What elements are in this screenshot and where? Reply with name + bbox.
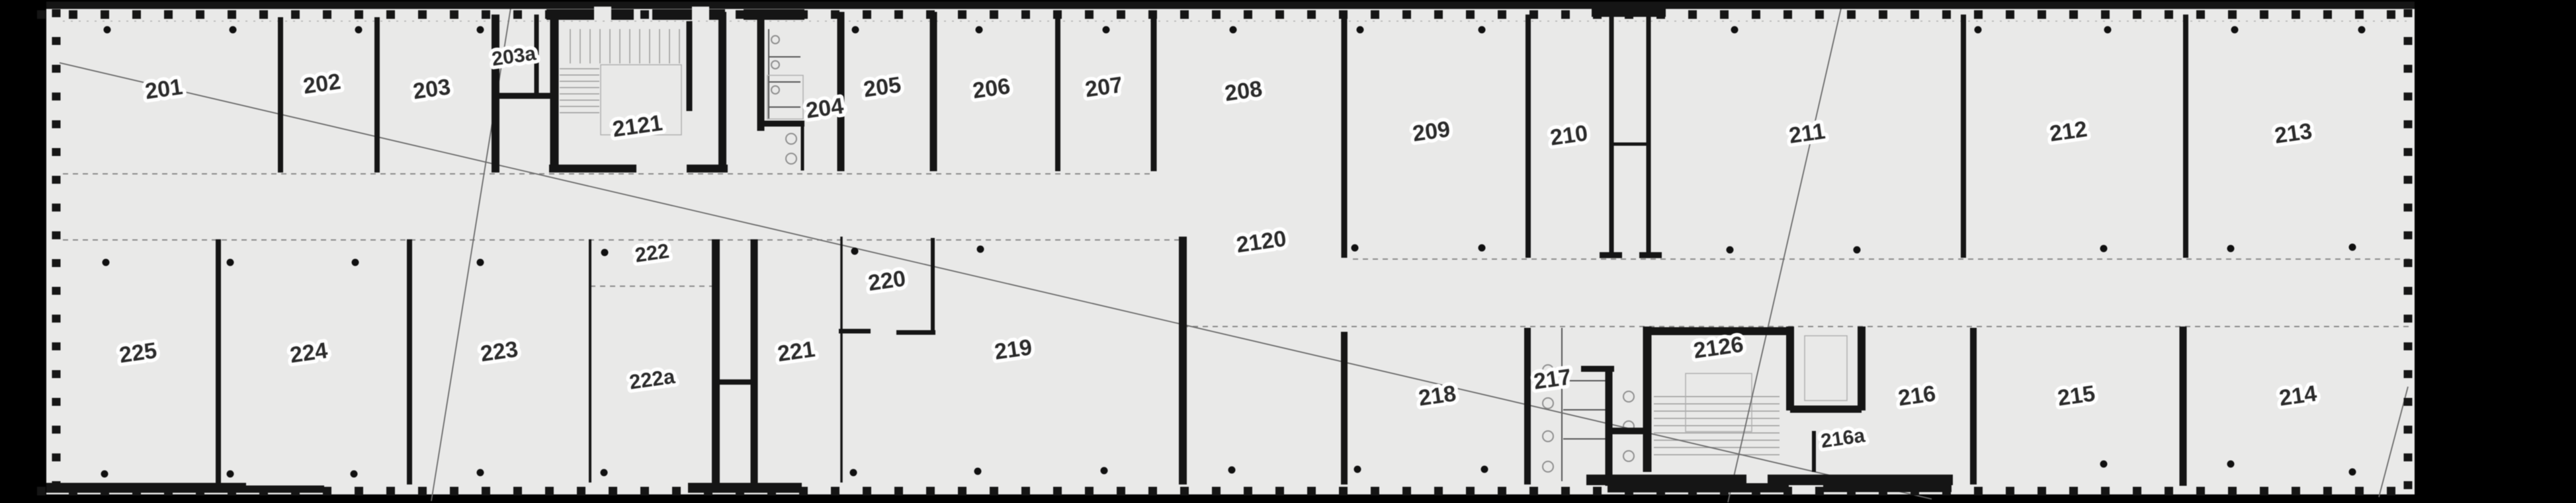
- column-dot: [2227, 245, 2235, 252]
- room-label-225: 225: [118, 338, 158, 368]
- room-label-201: 201: [144, 74, 184, 104]
- room-label-204: 204: [804, 93, 845, 124]
- room-label-211: 211: [1787, 118, 1827, 148]
- room-label-220: 220: [867, 266, 907, 296]
- column-dot: [477, 469, 484, 477]
- column-dot: [2104, 26, 2112, 34]
- column-dot: [2227, 461, 2235, 468]
- column-dot: [352, 259, 359, 266]
- column-dot: [1354, 466, 1361, 473]
- room-label-210: 210: [1549, 120, 1589, 151]
- column-dot: [227, 471, 234, 478]
- column-dot: [1727, 247, 1734, 254]
- column-dot: [103, 259, 110, 266]
- column-dot: [2358, 26, 2366, 34]
- room-label-223: 223: [479, 336, 519, 367]
- column-dot: [1101, 467, 1108, 475]
- column-dot: [852, 26, 859, 34]
- room-label-208: 208: [1223, 76, 1264, 106]
- column-dot: [227, 259, 234, 266]
- room-label-206: 206: [971, 73, 1011, 104]
- column-dot: [1731, 26, 1739, 34]
- column-dot: [601, 249, 609, 256]
- column-dot: [2349, 469, 2356, 476]
- wall-opening: [594, 7, 611, 20]
- room-label-222: 222: [634, 239, 671, 267]
- column-dot: [601, 469, 608, 477]
- room-label-221: 221: [776, 336, 816, 367]
- wall-opening: [692, 7, 709, 20]
- room-label-219: 219: [993, 334, 1033, 365]
- column-dot: [850, 469, 857, 477]
- column-dot: [1228, 467, 1236, 474]
- column-dot: [1230, 26, 1237, 34]
- room-label-215: 215: [2056, 381, 2096, 411]
- column-dot: [974, 468, 982, 475]
- room-label-214: 214: [2278, 381, 2319, 411]
- column-dot: [851, 248, 859, 255]
- floor-plan-svg: 201202203203a212120420520620720820921021…: [0, 0, 2576, 503]
- column-dot: [1481, 466, 1488, 473]
- floor-plan: 201202203203a212120420520620720820921021…: [0, 0, 2576, 503]
- room-label-217: 217: [1532, 364, 1572, 395]
- room-label-213: 213: [2273, 118, 2313, 149]
- room-label-216: 216: [1897, 381, 1937, 411]
- room-label-218: 218: [1417, 381, 1457, 411]
- column-dot: [2349, 244, 2356, 251]
- column-dot: [1975, 26, 1982, 34]
- column-dot: [1352, 245, 1359, 252]
- column-dot: [355, 26, 363, 34]
- column-dot: [477, 259, 484, 266]
- room-label-224: 224: [288, 338, 329, 368]
- room-label-212: 212: [2048, 116, 2088, 147]
- room-label-205: 205: [862, 72, 902, 102]
- column-dot: [2100, 461, 2108, 468]
- room-label-207: 207: [1084, 72, 1124, 102]
- column-dot: [230, 26, 237, 34]
- column-dot: [101, 471, 108, 478]
- room-label-202: 202: [302, 69, 342, 99]
- column-dot: [2100, 245, 2108, 252]
- column-dot: [1103, 26, 1110, 34]
- room-label-203: 203: [411, 74, 452, 104]
- column-dot: [1479, 245, 1486, 252]
- column-dot: [977, 246, 984, 253]
- column-dot: [351, 471, 358, 478]
- column-dot: [2231, 26, 2239, 34]
- column-dot: [976, 26, 983, 34]
- column-dot: [104, 26, 111, 34]
- room-label-209: 209: [1411, 116, 1451, 147]
- column-dot: [1854, 247, 1861, 254]
- column-dot: [477, 26, 484, 34]
- column-dot: [1357, 26, 1364, 34]
- column-dot: [1479, 26, 1486, 34]
